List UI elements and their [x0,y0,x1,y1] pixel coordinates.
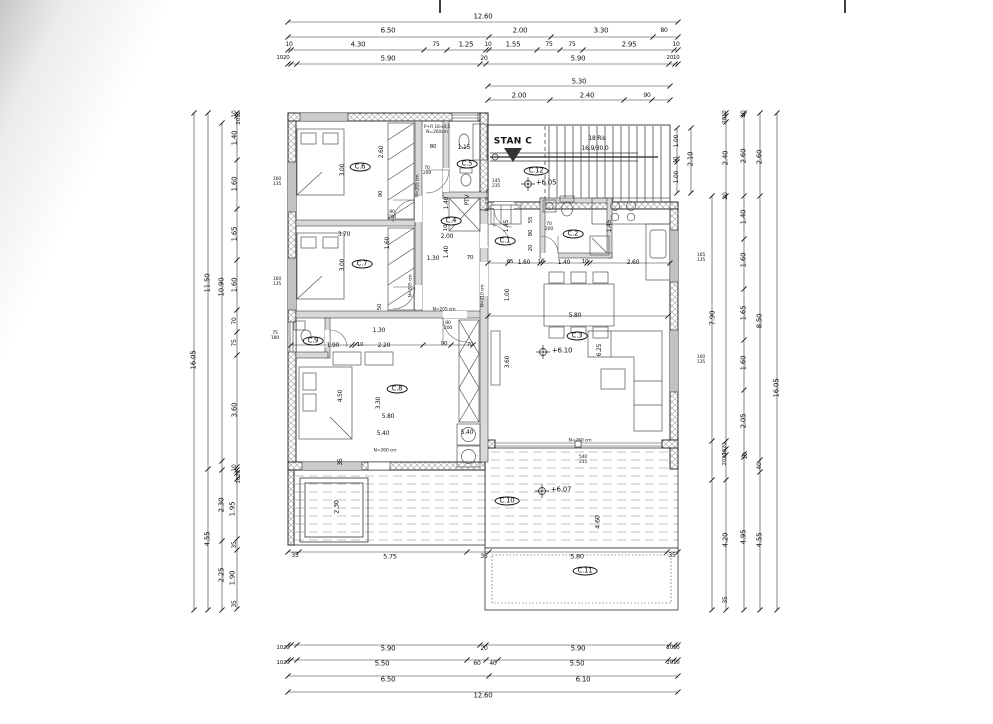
dim-label: 35 [291,553,298,559]
wardrobe-c8 [459,320,479,422]
level-label: +6.05 [536,179,556,186]
dim-label: 1.45 [504,220,510,233]
dim-label: 12.60 [473,692,492,699]
desk-1 [333,352,361,365]
dim-label: 2.40 [722,151,729,166]
stair-riser-count: 18 Ris [588,136,605,142]
dim-label: 1.40 [444,197,450,210]
dim-label: 3.00 [340,164,346,177]
dim-label: 40 [489,661,496,667]
wardrobe-c7 [388,228,414,310]
dim-label: 6.50 [381,27,396,34]
dim-label: 2.40 [580,92,595,99]
dim-label: 10 [582,260,589,266]
dim-label: 3.60 [231,403,238,418]
dim-label: 35 [232,600,238,607]
dim-label: 1020 [276,56,289,62]
dim-label: 1.40 [444,246,450,259]
dim-label: PTV [465,195,471,206]
room-label: C.10 [495,496,520,505]
dim-label: 2.00 [513,27,528,34]
room-label: C.7 [352,259,373,268]
dim-label: 35 [480,554,487,560]
dim-label: 1.40 [231,131,238,146]
dim-label: 70 [467,256,474,262]
dim-label: 3.60 [505,356,511,369]
dim-label: 1.60 [231,278,238,293]
dim-label: 1020 [276,661,289,667]
dim-label: 2.60 [379,146,385,159]
dim-label: 4.95 [740,530,747,545]
dim-label: 6.50 [381,676,396,683]
level-label: +6.10 [552,347,572,354]
dim-label: 75 [568,42,575,48]
room-label: C.8 [387,384,408,393]
dim-label: 2020 [723,452,729,465]
dining-table [544,272,614,338]
dim-label: 2.05 [740,414,747,429]
dim-label: 90 [379,191,385,198]
dim-label: 3.00 [340,259,346,272]
room-label: C.2 [563,229,584,238]
dim-label: 12.60 [473,13,492,20]
floor-plan-canvas: 12.606.502.003.3080104.30751.25101.55757… [0,0,993,724]
bed-c8 [299,367,352,439]
dim-label: 1.55 [506,41,521,48]
dim-label: 5.90 [571,55,586,62]
dim-label: 2.00 [441,234,454,240]
dim-label: 16.05 [773,378,780,397]
tag-label: 165 135 [697,254,705,264]
terraces [294,448,678,610]
dim-label: 2.30 [218,498,225,513]
dim-label: 1.40 [740,210,747,225]
room-label: C.1 [495,236,516,245]
dim-label: 80 [529,230,535,237]
dim-label: 8.50 [756,314,763,329]
dim-label: 1.25 [459,41,474,48]
tag-label: 160 135 [273,278,281,288]
coffee-table [601,369,625,389]
dim-label: 6.10 [576,676,591,683]
dim-label: 10 [674,157,680,164]
dim-label: 80 [660,28,667,34]
tag-label: 80 200 [444,322,452,332]
dim-label: 3.70 [338,232,351,238]
tag-label: 160 135 [273,178,281,188]
dim-label: 2010 [723,110,729,123]
desk-2 [365,352,393,365]
dim-label: 5.90 [381,645,396,652]
dim-label: 5.80 [382,414,395,420]
dim-label: 1.60 [231,177,238,192]
room-label: C.11 [573,566,598,575]
dim-label: 5.90 [381,55,396,62]
dim-label: 10 [232,110,238,117]
dim-label: 35 [232,541,238,548]
tag-label: 160 135 [697,356,705,366]
dim-label: 11.50 [204,273,211,292]
tag-label: 70 200 [423,167,431,177]
dim-label: 2.20 [378,343,391,349]
dim-label: 5.50 [375,660,390,667]
dim-label: 35 [723,596,729,603]
dim-label: 1.00 [674,135,680,148]
kitchen [592,198,670,280]
dim-label: 1.90 [229,571,236,586]
note-label: P+R 16×4,5 N=260cm [424,126,450,136]
note-label: N=205 cm [410,275,415,298]
dim-label: 10 [285,42,292,48]
dim-label: 1.60 [518,260,531,266]
dim-label: 55 [529,217,535,224]
dim-label: 20 [723,192,729,199]
dim-label: 4.30 [351,41,366,48]
dim-label: 5.40 [377,431,390,437]
dim-label: 10 [444,225,450,232]
dim-label: 1.45 [607,220,613,233]
dim-label: 4.55 [756,533,763,548]
dim-label: 90 [441,342,448,348]
level-label: +6.07 [551,486,571,493]
room-label: C.6 [350,162,371,171]
dim-label: 1.30 [427,256,440,262]
dim-label: 2.60 [756,150,763,165]
dim-label: 90 [643,93,650,99]
dim-label: 65 [507,260,514,266]
dim-label: 6.25 [597,344,603,357]
dim-label: 50 [378,304,384,311]
dim-label: 1.00 [674,171,680,184]
dim-label: 2.00 [512,92,527,99]
dim-label: 10 [484,42,491,48]
dim-label: 5.40 [461,430,474,436]
dim-label: 1.90 [327,343,340,349]
dim-label: 16.05 [190,350,197,369]
bed-c6 [297,129,344,195]
dim-label: 10 [672,42,679,48]
stair-riser-dims: 16.9/30.0 [582,146,609,152]
dim-label: 1.60 [740,356,747,371]
dim-label: 2.60 [740,149,747,164]
tag-label: 70 200 [545,223,553,233]
dim-label: 5.90 [571,645,586,652]
dim-label: 1.65 [740,306,747,321]
dim-label: 4.20 [722,533,729,548]
dim-label: 4.55 [204,532,211,547]
dim-label: 1.95 [229,502,236,517]
dim-label: 1.15 [458,145,471,151]
dim-label: 2.25 [218,568,225,583]
dim-label: 70 [232,317,238,324]
tv-bench [491,331,500,385]
dim-label: 2.10 [687,152,694,167]
note-label: N=260 cm [569,440,592,445]
dim-label: 3.30 [594,27,609,34]
dim-label: 5.50 [570,660,585,667]
dim-label: 5.80 [570,554,584,561]
room-label: C.12 [524,166,549,175]
dim-label: 40 [757,462,763,469]
dim-label: 2.60 [627,260,640,266]
dim-label: 5.30 [572,78,587,85]
tag-label: 540 235 [579,456,587,466]
note-label: N=205 cm [417,175,422,198]
dim-label: 1.60 [740,253,747,268]
tag-label: 145 235 [492,180,500,190]
dim-label: 80 [430,145,437,151]
dim-label: 60 [473,661,480,667]
dim-label: 1.00 [505,289,511,302]
dim-label: 10 [357,343,364,349]
dim-label: 1.65 [231,227,238,242]
room-label: C.5 [457,159,478,168]
dim-label: 10 [741,110,747,117]
dim-label: 2.95 [622,41,637,48]
dim-label: 1.60 [385,237,391,250]
dim-label: 20 [480,646,487,652]
room-label: C.3 [567,331,588,340]
dim-label: 2010 [666,56,679,62]
note-label: N=260 cm [374,450,397,455]
dim-label: 20 [480,56,487,62]
dim-label: 20 [529,245,535,252]
dim-label: 4.50 [338,390,344,403]
dim-label: 7.90 [709,311,716,326]
dim-label: 1.30 [373,328,386,334]
dim-label: 4.60 [595,515,602,529]
dim-label: 1.40 [558,260,571,266]
dim-label: 10 [538,260,545,266]
plan-title: STAN C [494,137,533,146]
dim-label: 35 [668,553,675,559]
note-label: N=210 cm [482,285,487,308]
dim-label: 2010 [666,661,679,667]
dim-label: 35 [338,458,344,465]
wardrobe-c6 [388,123,414,219]
dim-label: 10.90 [218,277,225,296]
dim-label: 1020 [237,470,243,483]
floor-plan-svg [0,0,993,724]
tag-label: 80 200 [388,211,396,221]
note-label: N=205 cm [433,309,456,314]
room-label: C.9 [303,336,324,345]
dim-label: 75 [232,339,238,346]
dim-label: 2010 [666,646,679,652]
dim-label: 5.80 [569,313,582,319]
bed-c7 [297,233,344,299]
dim-label: 3.30 [376,397,382,410]
dim-label: 10 [743,452,749,459]
dim-label: 1020 [276,646,289,652]
dim-label: 75 [432,42,439,48]
dim-label: 75 [545,42,552,48]
dim-label: 5.75 [383,554,397,561]
crop-marks [440,0,845,13]
dim-label: 70 [467,343,474,349]
note-label: N=235 cm [487,189,492,212]
tag-label: 75 180 [271,332,279,342]
dim-label: 2.30 [334,500,341,514]
